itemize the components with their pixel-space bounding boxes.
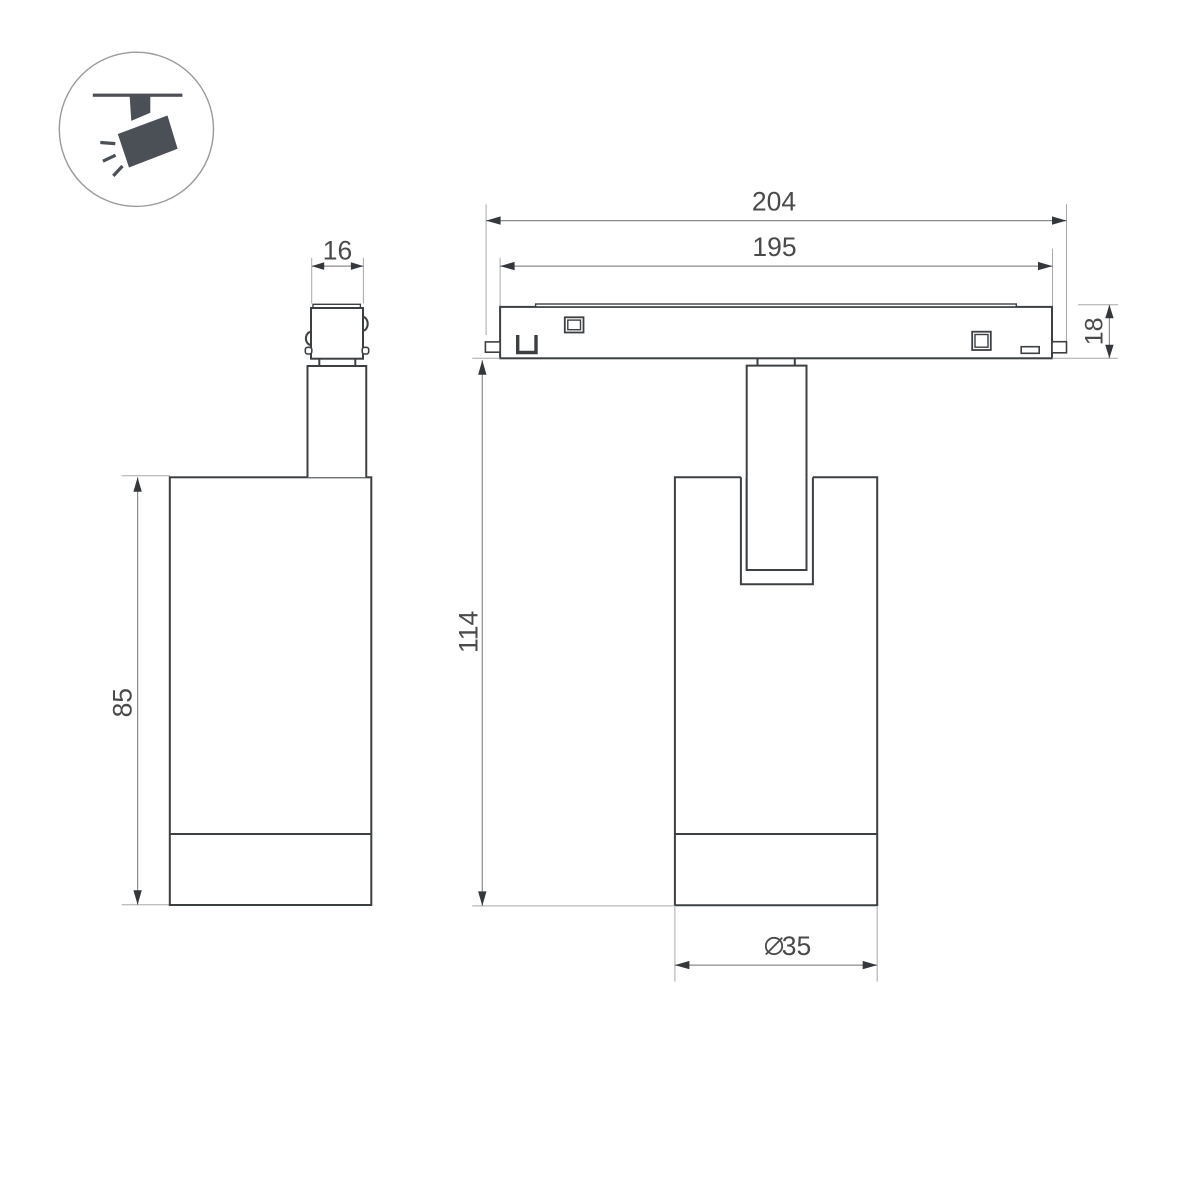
svg-text:85: 85 [108,688,138,717]
svg-text:16: 16 [323,236,352,266]
svg-text:18: 18 [1081,317,1109,345]
svg-text:195: 195 [752,232,796,262]
svg-text:114: 114 [454,611,484,653]
svg-text:35: 35 [782,931,811,961]
svg-text:204: 204 [752,187,796,217]
